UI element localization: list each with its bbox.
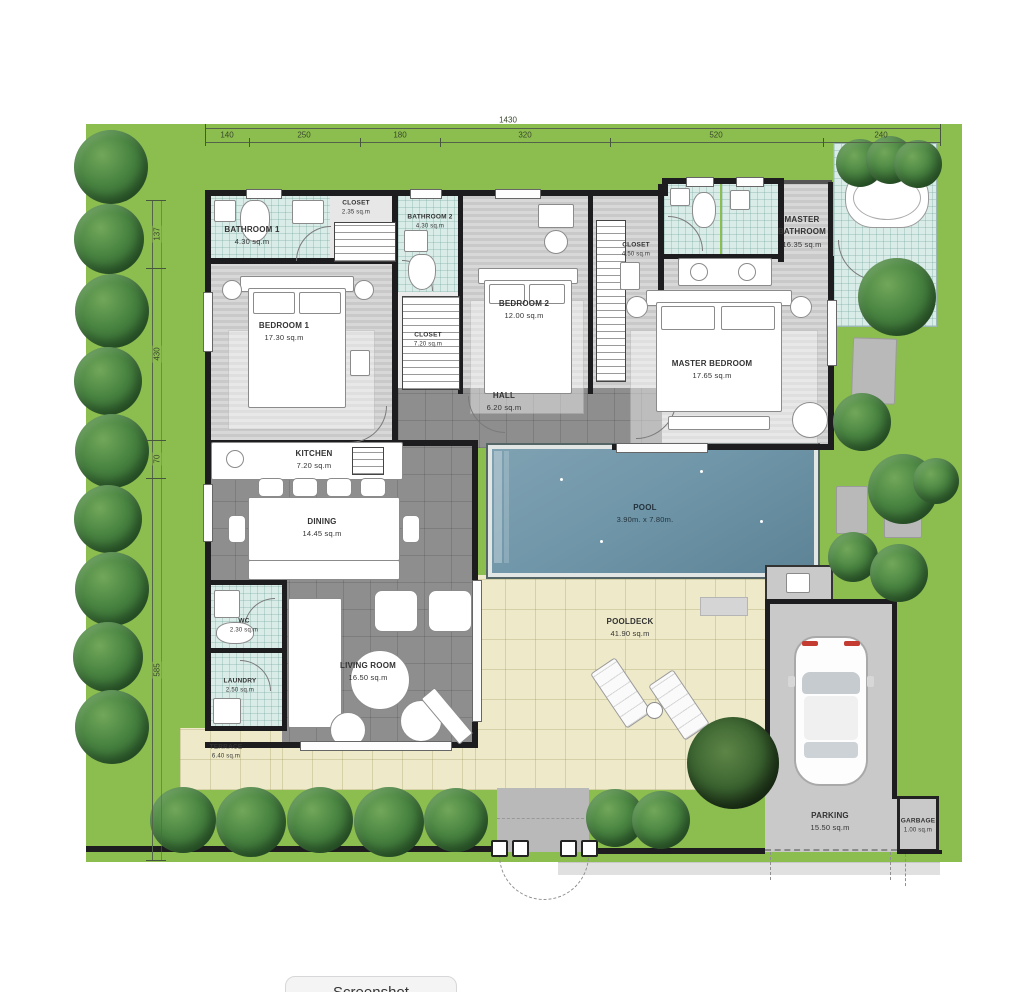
dimension-tick (146, 440, 166, 441)
car-windshield (802, 672, 860, 694)
room-label-bathroom1: BATHROOM 1 4.30 sq.m (224, 224, 279, 248)
wall (205, 648, 285, 653)
window (203, 292, 213, 352)
wall (658, 184, 664, 304)
dimension-segment-label: 520 (709, 131, 722, 140)
room-name: GARBAGE (901, 816, 936, 826)
car-top-view (792, 636, 870, 786)
tree (75, 552, 149, 626)
room-area: 4.50 sq.m (622, 250, 650, 259)
pillow (253, 292, 295, 314)
room-name: CLOSET (622, 240, 650, 250)
dining-chair (360, 478, 386, 497)
glass-door (616, 443, 708, 453)
boundary-wall (897, 850, 942, 854)
tree (632, 791, 690, 849)
room-area: 12.00 sq.m (499, 310, 549, 322)
wall (892, 599, 897, 799)
car-mirror (867, 676, 874, 687)
kitchen-sink (226, 450, 244, 468)
room-name: WC (230, 616, 258, 626)
vanity-sink (690, 263, 708, 281)
room-label-kitchen: KITCHEN 7.20 sq.m (296, 448, 333, 472)
window (410, 189, 442, 199)
window (736, 177, 764, 187)
dimension-segment-label: 585 (153, 661, 162, 678)
dining-bench (248, 560, 400, 580)
pool-sparkle (760, 520, 763, 523)
window (686, 177, 714, 187)
room-name: TERRACE (210, 742, 243, 752)
pool-pump (786, 573, 810, 593)
room-label-closet1: CLOSET 2.35 sq.m (342, 198, 370, 217)
dimension-line-left-2 (161, 200, 162, 860)
room-area: 14.45 sq.m (302, 528, 341, 540)
room-label-closet3: CLOSET 4.50 sq.m (622, 240, 650, 259)
room-area: 16.35 sq.m (770, 239, 834, 251)
room-label-master-bedroom: MASTER BEDROOM 17.65 sq.m (672, 358, 753, 382)
gate-swing-arc (499, 853, 589, 900)
car-rear-window (804, 742, 858, 758)
shower-head (730, 190, 750, 210)
dimension-line-left (152, 200, 153, 860)
screenshot-button-label: Screenshot (333, 984, 409, 992)
bedroom-desk (538, 204, 574, 228)
room-name: POOL (617, 502, 674, 514)
dimension-segment-label: 250 (297, 131, 310, 140)
room-label-dining: DINING 14.45 sq.m (302, 516, 341, 540)
dimension-tick (205, 124, 206, 146)
tree (216, 787, 286, 857)
pillow (299, 292, 341, 314)
tree (833, 393, 891, 451)
bathroom-sink (214, 200, 236, 222)
room-name: MASTER BEDROOM (672, 358, 753, 370)
dimension-tick (823, 138, 824, 147)
tree (74, 130, 148, 204)
room-area: 6.40 sq.m (210, 752, 243, 761)
tree (424, 788, 488, 852)
room-label-pool: POOL 3.90m. x 7.80m. (617, 502, 674, 526)
dining-chair (228, 515, 246, 543)
desk-chair (544, 230, 568, 254)
dimension-total-label: 1430 (499, 116, 517, 125)
wall (392, 258, 398, 444)
vanity (292, 200, 324, 224)
armchair (374, 590, 418, 632)
toilet (692, 192, 716, 228)
room-area: 4.30 sq.m (407, 222, 452, 231)
room-label-laundry: LAUNDRY 2.50 sq.m (224, 676, 257, 695)
dimension-line-total (205, 128, 940, 129)
nightstand (626, 296, 648, 318)
dining-chair (402, 515, 420, 543)
bed-bench (668, 416, 770, 430)
room-label-bathroom2: BATHROOM 2 4.30 sq.m (407, 212, 452, 231)
wall (282, 580, 287, 731)
gate-post (491, 840, 508, 857)
room-name: LAUNDRY (224, 676, 257, 686)
room-area: 7.20 sq.m (414, 340, 442, 349)
tree (894, 140, 942, 188)
nightstand (222, 280, 242, 300)
glass-wall (472, 580, 482, 722)
site-plan: 1430 140 250 180 320 520 240 137 430 70 … (0, 0, 1024, 992)
wall (765, 599, 770, 739)
dining-chair (258, 478, 284, 497)
dimension-segment-label: 180 (393, 131, 406, 140)
room-area: 15.50 sq.m (810, 822, 849, 834)
room-area: 2.50 sq.m (224, 686, 257, 695)
dimension-tick (146, 268, 166, 269)
room-name: KITCHEN (296, 448, 333, 460)
room-area: 17.30 sq.m (259, 332, 309, 344)
room-name: PARKING (810, 810, 849, 822)
tree (913, 458, 959, 504)
toilet (408, 254, 436, 290)
room-label-parking: PARKING 15.50 sq.m (810, 810, 849, 834)
garden-paver (836, 486, 868, 534)
tree (75, 274, 149, 348)
shrub (687, 717, 779, 809)
pool-sparkle (700, 470, 703, 473)
wall (588, 190, 593, 394)
room-area: 41.90 sq.m (607, 628, 654, 640)
dimension-tick (146, 860, 166, 861)
car-roof (804, 696, 858, 740)
room-name: POOLDECK (607, 616, 654, 628)
room-name: MASTER BATHROOM (770, 214, 834, 239)
gate-post (512, 840, 529, 857)
room-area: 2.30 sq.m (230, 626, 258, 635)
room-label-terrace: TERRACE 6.40 sq.m (210, 742, 243, 761)
vanity-sink (738, 263, 756, 281)
dimension-tick (249, 138, 250, 147)
nightstand (354, 280, 374, 300)
room-label-hall: HALL 6.20 sq.m (487, 390, 522, 414)
dimension-segment-label: 70 (153, 453, 162, 466)
room-area: 6.20 sq.m (487, 402, 522, 414)
room-label-closet2: CLOSET 7.20 sq.m (414, 330, 442, 349)
dining-chair (326, 478, 352, 497)
dimension-line-segments (205, 142, 940, 143)
dimension-segment-label: 320 (518, 131, 531, 140)
window (827, 300, 837, 366)
dimension-tick (940, 124, 941, 146)
dresser (620, 262, 640, 290)
pillow (661, 306, 715, 330)
sofa (288, 598, 342, 728)
dimension-segment-label: 140 (220, 131, 233, 140)
gate-post (560, 840, 577, 857)
dining-chair (292, 478, 318, 497)
room-name: LIVING ROOM (340, 660, 396, 672)
car-light (802, 641, 818, 646)
pool-sparkle (560, 478, 563, 481)
nightstand (790, 296, 812, 318)
screenshot-button[interactable]: Screenshot (285, 976, 457, 992)
room-name: BATHROOM 2 (407, 212, 452, 222)
room-area: 1.00 sq.m (901, 826, 936, 835)
room-area: 4.30 sq.m (224, 236, 279, 248)
boundary-wall (588, 848, 765, 854)
room-name: BEDROOM 2 (499, 298, 549, 310)
driveway-dashed (890, 852, 892, 880)
wc-shower (214, 590, 240, 618)
walkway-joint (497, 818, 589, 819)
dimension-segment-label: 137 (153, 225, 162, 242)
room-name: CLOSET (414, 330, 442, 340)
wall-light (784, 180, 832, 184)
room-area: 17.65 sq.m (672, 370, 753, 382)
tree (287, 787, 353, 853)
room-name: BATHROOM 1 (224, 224, 279, 236)
wall (662, 178, 784, 184)
bedroom-desk (350, 350, 370, 376)
room-label-bedroom2: BEDROOM 2 12.00 sq.m (499, 298, 549, 322)
dimension-segment-label: 240 (874, 131, 887, 140)
room-name: CLOSET (342, 198, 370, 208)
room-area: 7.20 sq.m (296, 460, 333, 472)
room-label-bedroom1: BEDROOM 1 17.30 sq.m (259, 320, 309, 344)
room-area: 2.35 sq.m (342, 208, 370, 217)
room-area: 16.50 sq.m (340, 672, 396, 684)
dimension-segment-label: 430 (153, 345, 162, 362)
car-light (844, 641, 860, 646)
deck-mat (700, 597, 748, 616)
room-name: BEDROOM 1 (259, 320, 309, 332)
armchair (792, 402, 828, 438)
bathroom-sink (404, 230, 428, 252)
pool-steps (504, 451, 509, 563)
room-name: DINING (302, 516, 341, 528)
wall (765, 599, 897, 604)
room-label-wc: WC 2.30 sq.m (230, 616, 258, 635)
dimension-tick (440, 138, 441, 147)
dimension-tick (146, 478, 166, 479)
wall (205, 726, 285, 731)
tree (73, 622, 143, 692)
dimension-tick (146, 200, 166, 201)
room-area: 3.90m. x 7.80m. (617, 514, 674, 526)
gate-post (581, 840, 598, 857)
tree (354, 787, 424, 857)
sidewalk (558, 862, 940, 875)
pool-sparkle (600, 540, 603, 543)
closet-shelving (334, 222, 396, 262)
sliding-glass-door (300, 741, 452, 751)
tree (870, 544, 928, 602)
window (495, 189, 541, 199)
stove (352, 447, 384, 475)
tree (74, 485, 142, 553)
room-label-garbage: GARBAGE 1.00 sq.m (901, 816, 936, 835)
side-table (646, 702, 663, 719)
window (246, 189, 282, 199)
room-name: HALL (487, 390, 522, 402)
tree (858, 258, 936, 336)
washing-machine (213, 698, 241, 724)
driveway-dashed (905, 854, 907, 886)
car-mirror (788, 676, 795, 687)
tree (74, 347, 142, 415)
dimension-tick (610, 138, 611, 147)
pool-steps (494, 451, 502, 563)
boundary-wall (86, 846, 498, 852)
tree (75, 414, 149, 488)
tree (74, 204, 144, 274)
wall (205, 580, 285, 585)
tree (75, 690, 149, 764)
dimension-tick (360, 138, 361, 147)
room-label-living-room: LIVING ROOM 16.50 sq.m (340, 660, 396, 684)
room-label-master-bathroom: MASTER BATHROOM 16.35 sq.m (770, 214, 834, 250)
parking-entry-dashed (765, 849, 897, 851)
driveway-dashed (770, 852, 772, 880)
tree (150, 787, 216, 853)
pillow (721, 306, 775, 330)
pooldeck-floor-south (282, 745, 475, 790)
room-label-pooldeck: POOLDECK 41.90 sq.m (607, 616, 654, 640)
toilet-cistern (670, 188, 690, 206)
window (203, 484, 213, 542)
armchair (428, 590, 472, 632)
